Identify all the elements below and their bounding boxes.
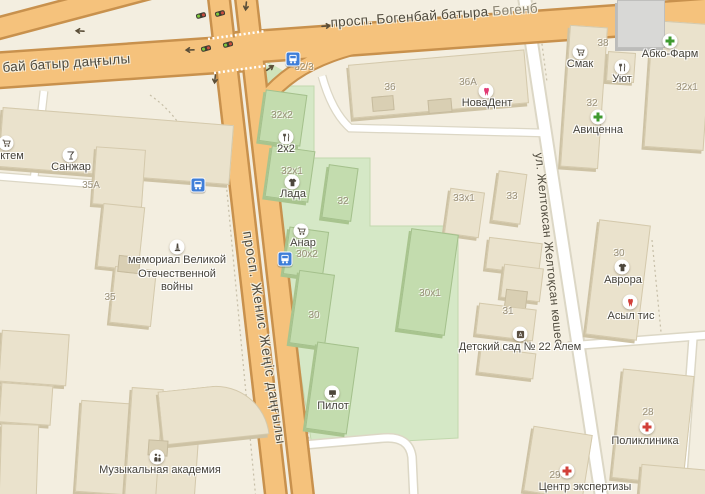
building-number: 33: [506, 191, 517, 202]
building-number: 30х1: [419, 288, 441, 299]
poi-label[interactable]: Аврора: [604, 274, 642, 286]
building-number: 30х2: [296, 249, 318, 260]
poi-label[interactable]: Абко-Фарм: [642, 48, 699, 60]
building[interactable]: [617, 0, 665, 48]
monitor-icon[interactable]: [325, 386, 340, 401]
red-cross-icon[interactable]: [560, 464, 575, 479]
poi-label[interactable]: Лада: [280, 188, 306, 200]
poi-label[interactable]: Смак: [567, 58, 593, 70]
poi-label[interactable]: 2х2: [277, 143, 295, 155]
building-number: 30: [308, 310, 319, 321]
building-number: 30: [613, 248, 624, 259]
bus-icon[interactable]: [278, 252, 293, 267]
red-cross-icon[interactable]: [640, 420, 655, 435]
poi-label[interactable]: Пилот: [317, 400, 349, 412]
poi-label[interactable]: Санжар: [51, 161, 91, 173]
poi-label[interactable]: Центр экспертизы: [539, 481, 632, 493]
poi-label[interactable]: Анар: [290, 237, 316, 249]
building[interactable]: [639, 464, 705, 494]
bus-icon[interactable]: [191, 178, 206, 193]
building-number: 36А: [459, 77, 477, 88]
building-number: 28: [642, 407, 653, 418]
green-cross-icon[interactable]: [591, 110, 606, 125]
building-number: 32х1: [676, 82, 698, 93]
building-number: 36: [384, 82, 395, 93]
building[interactable]: [92, 146, 146, 207]
clothes-icon[interactable]: [615, 260, 630, 275]
poi-label[interactable]: ктем: [0, 150, 24, 162]
people-icon[interactable]: [150, 450, 165, 465]
building[interactable]: [0, 423, 39, 494]
map-canvas[interactable]: просп. Богенбай батыра Бөгенб бай батыр …: [0, 0, 705, 494]
building[interactable]: [0, 330, 70, 387]
building[interactable]: [0, 382, 53, 426]
street-name-alt: Бөгенб: [492, 1, 538, 19]
building-number: 32х2: [271, 110, 293, 121]
building-annex[interactable]: [427, 98, 452, 114]
poi-label[interactable]: НоваДент: [462, 97, 513, 109]
poi-label[interactable]: Авиценна: [573, 124, 623, 136]
building-number: 33х1: [453, 193, 475, 204]
tooth-icon[interactable]: [623, 295, 638, 310]
poi-label[interactable]: мемориал Великой Отечественной войны: [127, 254, 227, 295]
building-number: 31: [502, 306, 513, 317]
building-number: 32: [586, 98, 597, 109]
green-cross-icon[interactable]: [663, 34, 678, 49]
building-number: 35: [104, 292, 115, 303]
monument-icon[interactable]: [170, 240, 185, 255]
poi-label[interactable]: Асыл тис: [608, 310, 655, 322]
poi-label[interactable]: Детский сад № 22 Алем: [459, 341, 581, 353]
poi-label[interactable]: Поликлиника: [611, 435, 678, 447]
toy-cube-icon[interactable]: [513, 327, 528, 342]
bus-icon[interactable]: [286, 52, 301, 67]
poi-label[interactable]: Музыкальная академия: [99, 464, 221, 476]
building-number: 32: [337, 196, 348, 207]
poi-label[interactable]: Уют: [612, 73, 632, 85]
building-number: 38: [597, 38, 608, 49]
building-number: 35А: [82, 180, 100, 191]
building-annex[interactable]: [371, 95, 394, 112]
